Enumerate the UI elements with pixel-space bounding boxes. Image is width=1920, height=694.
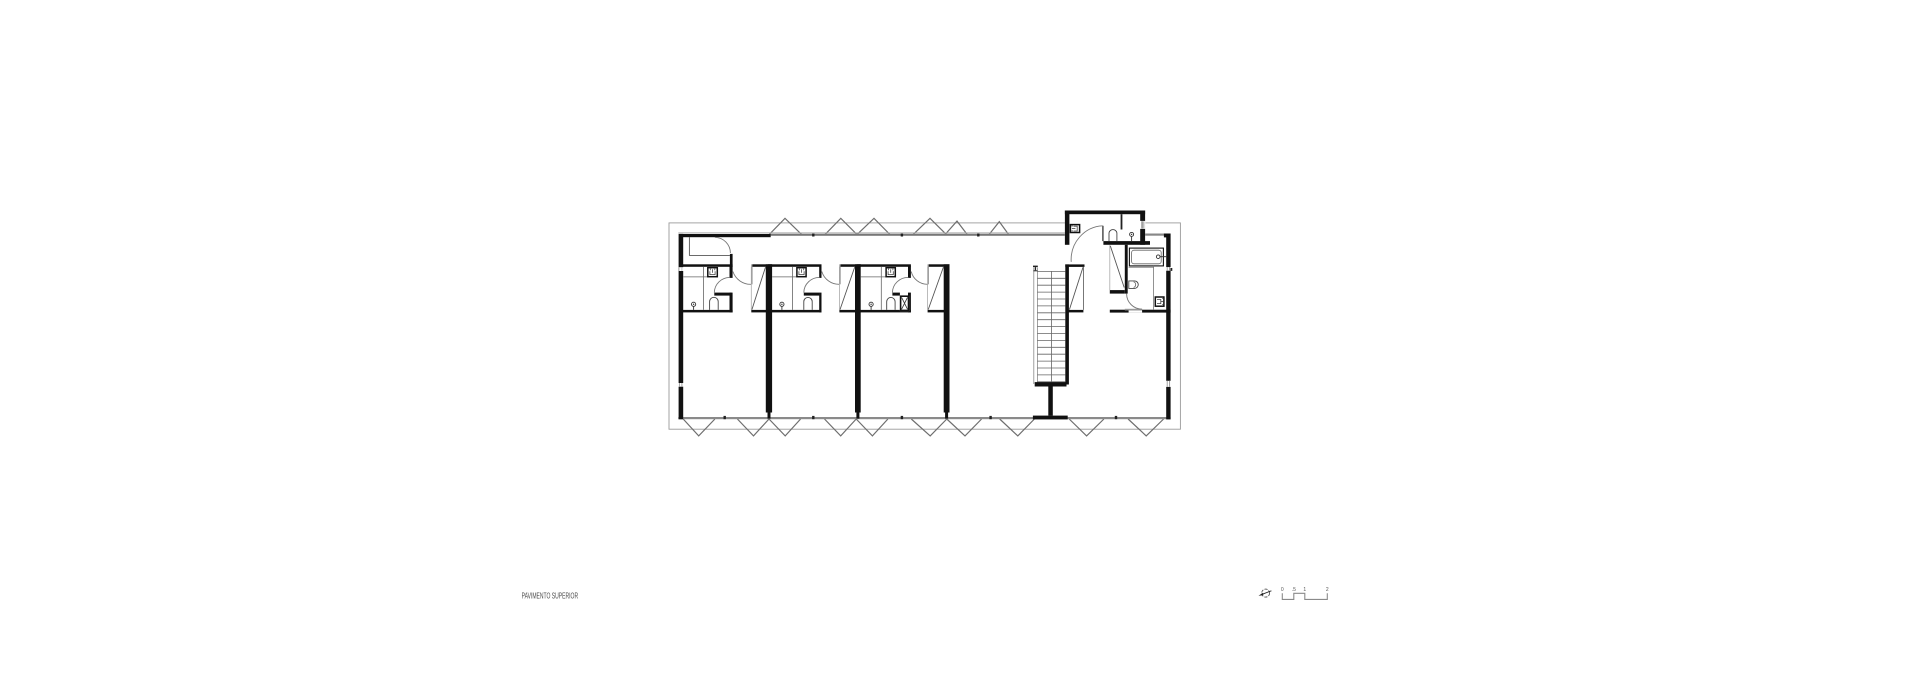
svg-text:.5: .5 bbox=[1292, 587, 1296, 593]
svg-text:1: 1 bbox=[1303, 587, 1306, 593]
svg-text:PAVIMENTO SUPERIOR: PAVIMENTO SUPERIOR bbox=[522, 591, 579, 600]
svg-text:2: 2 bbox=[1326, 587, 1329, 593]
svg-text:0: 0 bbox=[1281, 587, 1284, 593]
